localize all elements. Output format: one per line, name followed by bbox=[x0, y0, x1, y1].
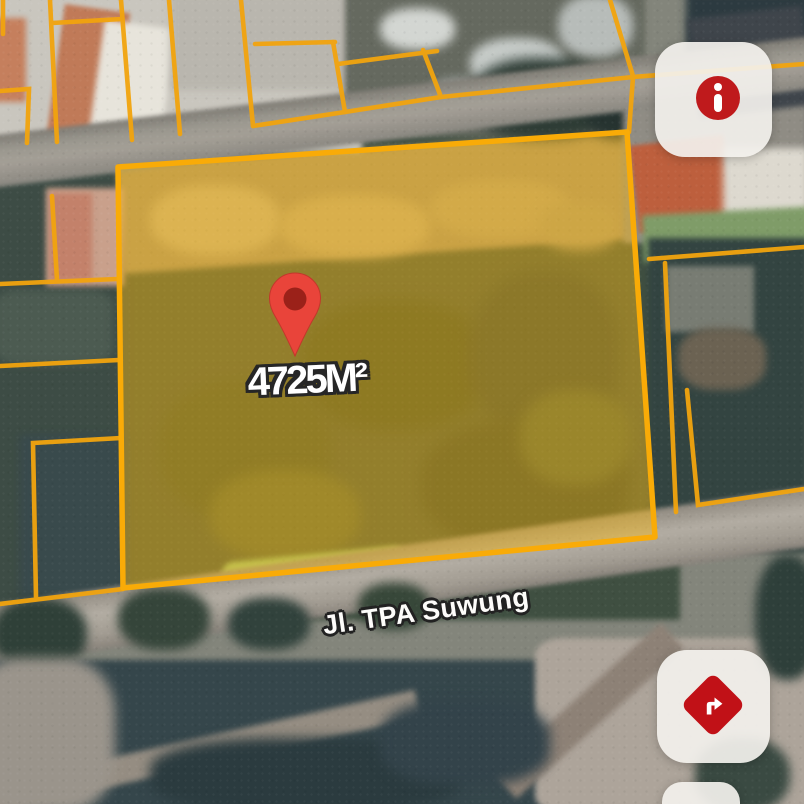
map-pin[interactable] bbox=[268, 272, 322, 358]
info-icon bbox=[696, 76, 740, 120]
info-button[interactable] bbox=[655, 42, 772, 157]
map-pin-icon bbox=[268, 272, 322, 358]
info-icon-dot bbox=[714, 83, 722, 91]
parcel-area-label: 4725M² bbox=[213, 354, 400, 407]
info-icon-stem bbox=[714, 94, 722, 112]
satellite-map-canvas[interactable]: 4725M² Jl. TPA Suwung bbox=[0, 0, 804, 804]
partial-button[interactable] bbox=[662, 782, 740, 804]
turn-right-arrow-glyph bbox=[698, 690, 729, 721]
directions-button[interactable] bbox=[657, 650, 770, 763]
